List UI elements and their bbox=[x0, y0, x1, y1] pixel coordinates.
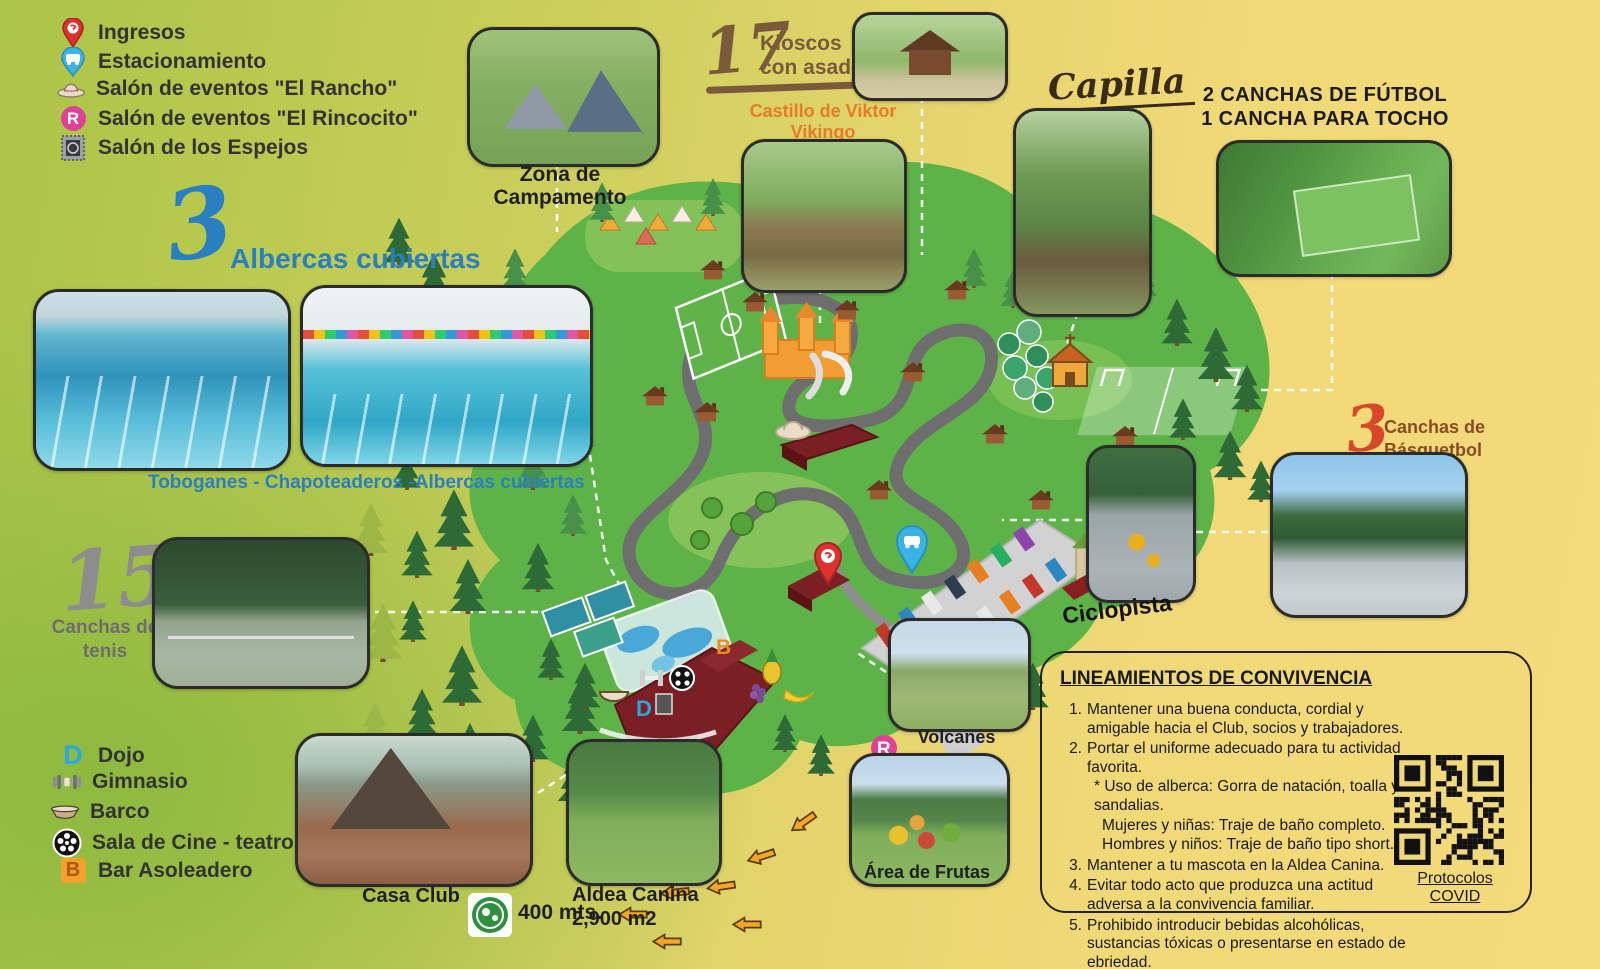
rules-list: 1.Mantener una buena conducta, cordial y… bbox=[1060, 701, 1416, 969]
r-badge-icon: R bbox=[58, 106, 88, 131]
photo-alberca-toboganes bbox=[33, 289, 291, 471]
photo-decoration bbox=[36, 376, 288, 468]
legend-label: Bar Asoleadero bbox=[98, 859, 252, 883]
legend-label: Ingresos bbox=[98, 21, 186, 45]
rule-item: 1.Mantener una buena conducta, cordial y… bbox=[1060, 701, 1416, 738]
club-map-poster: D bbox=[0, 0, 1600, 969]
legend-label: Salón de eventos "El Rincocito" bbox=[98, 107, 418, 131]
photo-decoration bbox=[909, 50, 951, 75]
map-badge-bar: B bbox=[716, 636, 731, 659]
rule-item: 5.Prohibido introducir bebidas alcohólic… bbox=[1060, 917, 1416, 969]
legend-item-bar: B Bar Asoleadero bbox=[58, 858, 252, 883]
photo-decoration bbox=[504, 84, 568, 130]
lineamientos-title: LINEAMIENTOS DE CONVIVENCIA bbox=[1060, 668, 1512, 690]
photo-decoration bbox=[330, 748, 451, 829]
legend-item-gimnasio: Gimnasio bbox=[52, 770, 188, 794]
photo-ciclopista bbox=[1086, 445, 1196, 603]
photo-kiosco bbox=[852, 12, 1008, 101]
albercas-title: Albercas cubiertas bbox=[230, 243, 481, 275]
futbol-line2: 1 CANCHA PARA TOCHO bbox=[1185, 107, 1465, 131]
legend-item-rincocito: R Salón de eventos "El Rincocito" bbox=[58, 106, 418, 131]
map-badge-dojo: D bbox=[636, 696, 652, 721]
volcanes-label: Volcanes bbox=[888, 727, 1025, 748]
photo-aldea-canina bbox=[566, 739, 722, 886]
photo-decoration bbox=[168, 636, 355, 639]
legend-item-barco: Barco bbox=[50, 800, 150, 824]
capilla-label: Capilla bbox=[1039, 60, 1195, 113]
legend-item-dojo: D Dojo bbox=[58, 740, 145, 771]
legend-label: Dojo bbox=[98, 744, 145, 768]
cowboy-hat-icon bbox=[56, 79, 86, 99]
photo-volcanes bbox=[888, 618, 1031, 732]
futbol-heading: 2 CANCHAS DE FÚTBOL 1 CANCHA PARA TOCHO bbox=[1185, 83, 1465, 131]
film-reel-icon bbox=[52, 828, 82, 858]
photo-decoration bbox=[567, 70, 642, 132]
albercas-caption: Toboganes - Chapoteaderos -Albercas cubi… bbox=[148, 472, 585, 494]
photo-decoration bbox=[1293, 174, 1420, 257]
qr-code bbox=[1394, 755, 1504, 865]
location-pin-icon bbox=[58, 18, 88, 48]
legend-label: Salón de los Espejos bbox=[98, 136, 308, 160]
photo-canchas-futbol bbox=[1216, 140, 1452, 277]
legend-item-rancho: Salón de eventos "El Rancho" bbox=[56, 77, 397, 101]
futbol-line1: 2 CANCHAS DE FÚTBOL bbox=[1185, 83, 1465, 107]
distancia-label: 400 mts. bbox=[518, 901, 602, 925]
photo-canchas-basquetbol bbox=[1270, 452, 1468, 618]
parking-pin-icon bbox=[58, 47, 88, 77]
protocolos-covid-link[interactable]: Protocolos COVID bbox=[1394, 870, 1516, 906]
rule-item: 4.Evitar todo acto que produzca una acti… bbox=[1060, 877, 1416, 914]
photo-decoration bbox=[900, 30, 960, 52]
legend-label: Salón de eventos "El Rancho" bbox=[96, 77, 397, 101]
photo-alberca-cubierta bbox=[300, 285, 593, 467]
rule-subitem: Hombres y niños: Traje de baño tipo shor… bbox=[1060, 836, 1416, 855]
legend-item-cine: Sala de Cine - teatro bbox=[52, 828, 294, 858]
legend-label: Estacionamiento bbox=[98, 50, 266, 74]
rule-subitem: * Uso de alberca: Gorra de natación, toa… bbox=[1060, 778, 1416, 815]
photo-zona-campamento bbox=[467, 27, 660, 167]
lineamientos-box: LINEAMIENTOS DE CONVIVENCIA 1.Mantener u… bbox=[1040, 651, 1532, 913]
dumbbell-icon bbox=[52, 771, 82, 793]
photo-capilla bbox=[1013, 108, 1152, 317]
count-albercas: 3 bbox=[160, 172, 240, 276]
d-letter-icon: D bbox=[58, 740, 88, 771]
campamento-label: Zona de Campamento bbox=[455, 163, 665, 209]
rule-item: 3.Mantener a tu mascota en la Aldea Cani… bbox=[1060, 857, 1416, 876]
b-letter-icon: B bbox=[58, 858, 88, 883]
rule-subitem: Mujeres y niñas: Traje de baño completo. bbox=[1060, 817, 1416, 836]
legend-label: Gimnasio bbox=[92, 770, 188, 794]
legend-label: Sala de Cine - teatro bbox=[92, 831, 294, 855]
photo-casa-club bbox=[295, 733, 533, 887]
frutas-label: Área de Frutas bbox=[838, 862, 1016, 883]
legend-label: Barco bbox=[90, 800, 150, 824]
rule-item: 2.Portar el uniforme adecuado para tu ac… bbox=[1060, 740, 1416, 777]
boat-icon bbox=[50, 802, 80, 822]
photo-decoration bbox=[303, 330, 590, 339]
legend-item-ingresos: Ingresos bbox=[58, 18, 186, 48]
photo-castillo bbox=[741, 139, 907, 293]
castillo-label: Castillo de Viktor Vikingo bbox=[748, 101, 898, 142]
legend-item-espejos: Salón de los Espejos bbox=[58, 135, 308, 161]
photo-canchas-tenis bbox=[152, 537, 370, 689]
legend-item-estacionamiento: Estacionamiento bbox=[58, 47, 266, 77]
photo-decoration bbox=[303, 394, 590, 464]
club-logo bbox=[468, 893, 512, 937]
mirrors-icon bbox=[58, 135, 88, 161]
